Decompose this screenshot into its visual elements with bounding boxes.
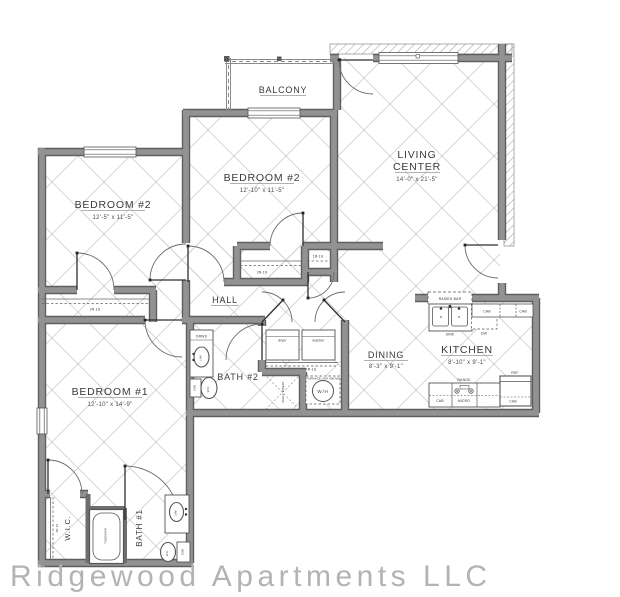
cab-label: CAB — [193, 385, 197, 391]
cab-label: CAB — [483, 310, 491, 314]
bedroom2-mid-dims: 12'-10" x 11'-5" — [240, 188, 285, 194]
window-living — [379, 53, 458, 64]
kitchen-dims: 8'-10" x 9'-1" — [448, 360, 486, 366]
cab-label: CAB — [436, 399, 444, 403]
washer-label: washer — [312, 339, 325, 343]
closet-2r1s-label: 2R-1S — [55, 524, 59, 532]
living-dims: 14'-0" x 21'-5" — [396, 177, 437, 183]
cab-label: CAB — [509, 400, 517, 404]
window-bedroom2-mid — [248, 108, 300, 118]
hall-label: HALL — [212, 295, 238, 305]
bedroom2-left-label: BEDROOM #2 — [75, 199, 152, 211]
wh-label: W/H — [317, 389, 328, 394]
closet-1r1s-label: 1R-1S — [306, 368, 317, 372]
raised-bar-label: RAISED BAR — [439, 297, 462, 301]
washer-icon — [302, 330, 335, 360]
living-label-1: LIVING — [397, 149, 436, 161]
balcony-railing — [224, 56, 337, 110]
furnace-label: FURNACE UNIT ABOVE — [307, 377, 340, 381]
balcony-post — [224, 56, 230, 62]
kitchen-label: KITCHEN — [441, 344, 493, 356]
dining-dims: 8'-3" x 9'-1" — [369, 364, 403, 370]
floor-plan-page: BALCONY LIVING CENTER 14'-0" x 21'-5" BE… — [0, 0, 620, 597]
tub-label: TUB/SHWR — [104, 528, 108, 544]
lav-label: LAV — [174, 510, 178, 515]
dw-label: DW — [481, 332, 488, 336]
window-bedroom2-left — [84, 147, 136, 157]
dining-label: DINING — [368, 350, 404, 360]
micro-label: MICRO — [458, 399, 470, 403]
ref-label: REF — [511, 371, 518, 375]
bedroom2-left-dims: 12'-5" x 11'-5" — [93, 215, 134, 221]
balcony-label: BALCONY — [259, 85, 308, 95]
shelf-insert-label: SHELF INSERT — [281, 381, 285, 402]
wc-label: W.C. — [165, 550, 169, 557]
bedroom1-label: BEDROOM #1 — [72, 386, 149, 398]
drws-label: DRWS — [196, 335, 208, 339]
window-bedroom1 — [37, 408, 47, 434]
cab-label: CAB — [519, 310, 527, 314]
balcony-post — [277, 57, 282, 62]
living-label-2: CENTER — [393, 161, 441, 173]
wc-label: W.C. — [206, 386, 210, 393]
wic-label: W.I.C. — [63, 515, 72, 540]
bedroom2-mid-label: BEDROOM #2 — [224, 172, 301, 184]
closet-1r1s-label: 1R-1S — [313, 255, 324, 259]
company-watermark: Ridgewood Apartments LLC — [10, 560, 492, 593]
range-label: RANGE — [457, 378, 471, 382]
cab-label: CAB — [181, 549, 185, 555]
closet-2r1s-label: 2R-1S — [90, 308, 101, 312]
closet-2r1s-label: 2R-1S — [257, 271, 268, 275]
bath1-label: BATH #1 — [135, 509, 144, 546]
floor-plan: BALCONY LIVING CENTER 14'-0" x 21'-5" BE… — [0, 0, 620, 597]
bath2-label: BATH #2 — [217, 372, 258, 382]
dryer-label: dryer — [278, 339, 287, 343]
sink-label: SINK — [446, 333, 455, 337]
dryer-icon — [266, 330, 299, 360]
lav-label: LAV — [199, 355, 203, 360]
bedroom1-dims: 12'-10" x 14'-9" — [87, 402, 132, 408]
